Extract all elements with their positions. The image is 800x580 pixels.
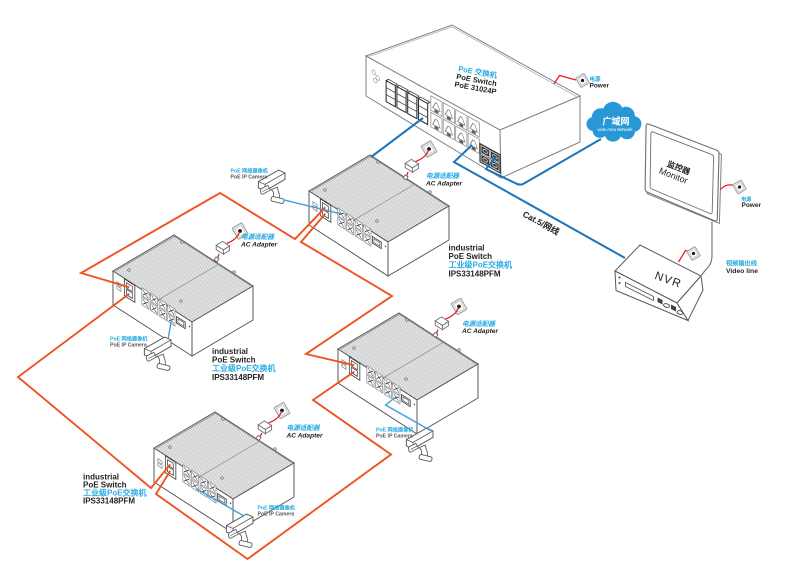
- svg-text:Power: Power: [590, 83, 610, 90]
- svg-text:AC Adapter: AC Adapter: [425, 181, 462, 188]
- svg-text:电源适配器: 电源适配器: [287, 424, 321, 432]
- svg-text:电源适配器: 电源适配器: [241, 233, 275, 241]
- svg-text:视频输出线: 视频输出线: [726, 260, 758, 268]
- svg-text:AC Adapter: AC Adapter: [286, 433, 323, 440]
- svg-text:Video line: Video line: [726, 268, 758, 275]
- svg-text:电源适配器: 电源适配器: [426, 172, 460, 180]
- svg-text:工业级PoE交换机: 工业级PoE交换机: [212, 363, 276, 373]
- svg-text:PoE 网络摄像机: PoE 网络摄像机: [258, 504, 296, 512]
- svg-text:电源适配器: 电源适配器: [462, 320, 496, 328]
- svg-text:PoE 网络摄像机: PoE 网络摄像机: [376, 426, 414, 434]
- svg-text:IPS33148PFM: IPS33148PFM: [449, 269, 501, 278]
- svg-text:PoE IP Camera: PoE IP Camera: [231, 175, 268, 181]
- svg-text:AC Adapter: AC Adapter: [461, 328, 498, 335]
- svg-text:IPS33148PFM: IPS33148PFM: [212, 373, 264, 382]
- svg-text:PoE 网络摄像机: PoE 网络摄像机: [110, 335, 148, 343]
- svg-text:PoE IP Camera: PoE IP Camera: [258, 512, 295, 518]
- svg-text:PoE 网络摄像机: PoE 网络摄像机: [231, 167, 269, 175]
- svg-text:Power: Power: [742, 202, 762, 209]
- svg-text:AC Adapter: AC Adapter: [240, 242, 277, 249]
- svg-text:工业级PoE交换机: 工业级PoE交换机: [449, 260, 513, 270]
- svg-text:Cat.5/网线: Cat.5/网线: [521, 209, 561, 237]
- svg-text:PoE IP Camera: PoE IP Camera: [110, 343, 147, 349]
- svg-text:IPS33148PFM: IPS33148PFM: [83, 497, 135, 506]
- svg-text:PoE IP Camera: PoE IP Camera: [376, 434, 413, 440]
- svg-text:wide Area Network: wide Area Network: [598, 127, 634, 132]
- svg-text:广域网: 广域网: [602, 116, 629, 127]
